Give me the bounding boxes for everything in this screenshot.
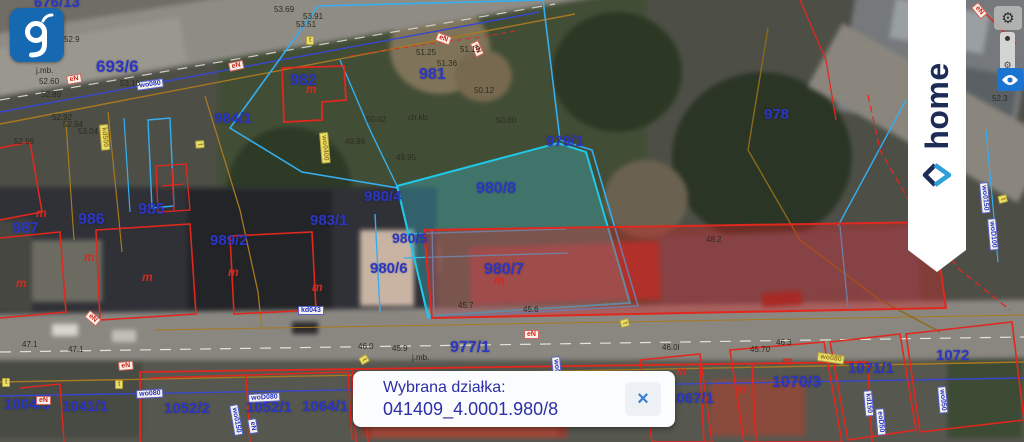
- gear-icon: ⚙: [1001, 9, 1014, 27]
- home-brand-label: home: [919, 62, 956, 149]
- popup-parcel-id: 041409_4.0001.980/8: [383, 399, 558, 420]
- visibility-button[interactable]: [997, 68, 1023, 91]
- home-banner-tail: [908, 250, 966, 272]
- home-banner[interactable]: home: [908, 0, 966, 250]
- selected-parcel-popup: Wybrana działka: 041409_4.0001.980/8 ×: [353, 371, 675, 427]
- popup-close-button[interactable]: ×: [625, 382, 661, 416]
- geoportal-g-icon: [10, 8, 64, 62]
- home-diamond-icon: [922, 162, 952, 188]
- close-icon: ×: [637, 388, 649, 411]
- settings-button[interactable]: ⚙: [994, 6, 1022, 30]
- eye-icon: [1001, 74, 1019, 86]
- slider-handle[interactable]: [1005, 36, 1010, 41]
- geoportal-logo[interactable]: [10, 8, 64, 62]
- popup-title: Wybrana działka:: [383, 379, 558, 397]
- map-application: 676/13693/6982984/1981979/1978980/8980/4…: [0, 0, 1024, 442]
